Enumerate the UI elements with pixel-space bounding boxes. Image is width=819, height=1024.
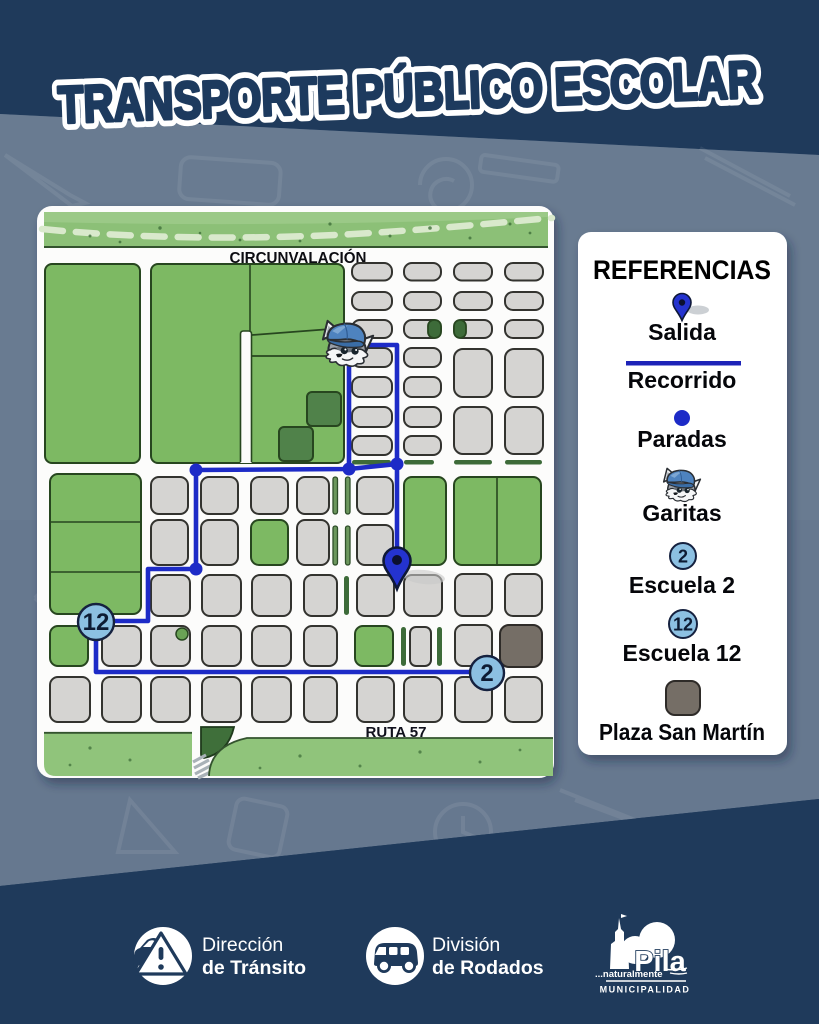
svg-text:Escuela 12: Escuela 12 [623,640,742,666]
svg-text:Plaza San Martín: Plaza San Martín [599,719,765,745]
svg-text:REFERENCIAS: REFERENCIAS [593,255,771,285]
svg-text:2: 2 [480,660,493,687]
svg-text:...naturalmente: ...naturalmente [595,969,663,980]
svg-text:de Tránsito: de Tránsito [202,957,306,979]
svg-text:Garitas: Garitas [642,500,721,526]
svg-text:Escuela 2: Escuela 2 [629,572,735,598]
svg-text:12: 12 [673,615,693,635]
svg-text:12: 12 [83,609,110,636]
svg-text:Recorrido: Recorrido [628,367,737,393]
svg-text:Dirección: Dirección [202,934,283,956]
svg-text:2: 2 [678,547,688,567]
svg-text:MUNICIPALIDAD: MUNICIPALIDAD [600,985,691,995]
svg-text:Paradas: Paradas [637,426,727,452]
svg-text:de Rodados: de Rodados [432,957,544,979]
svg-text:Salida: Salida [648,319,716,345]
svg-text:División: División [432,934,500,956]
